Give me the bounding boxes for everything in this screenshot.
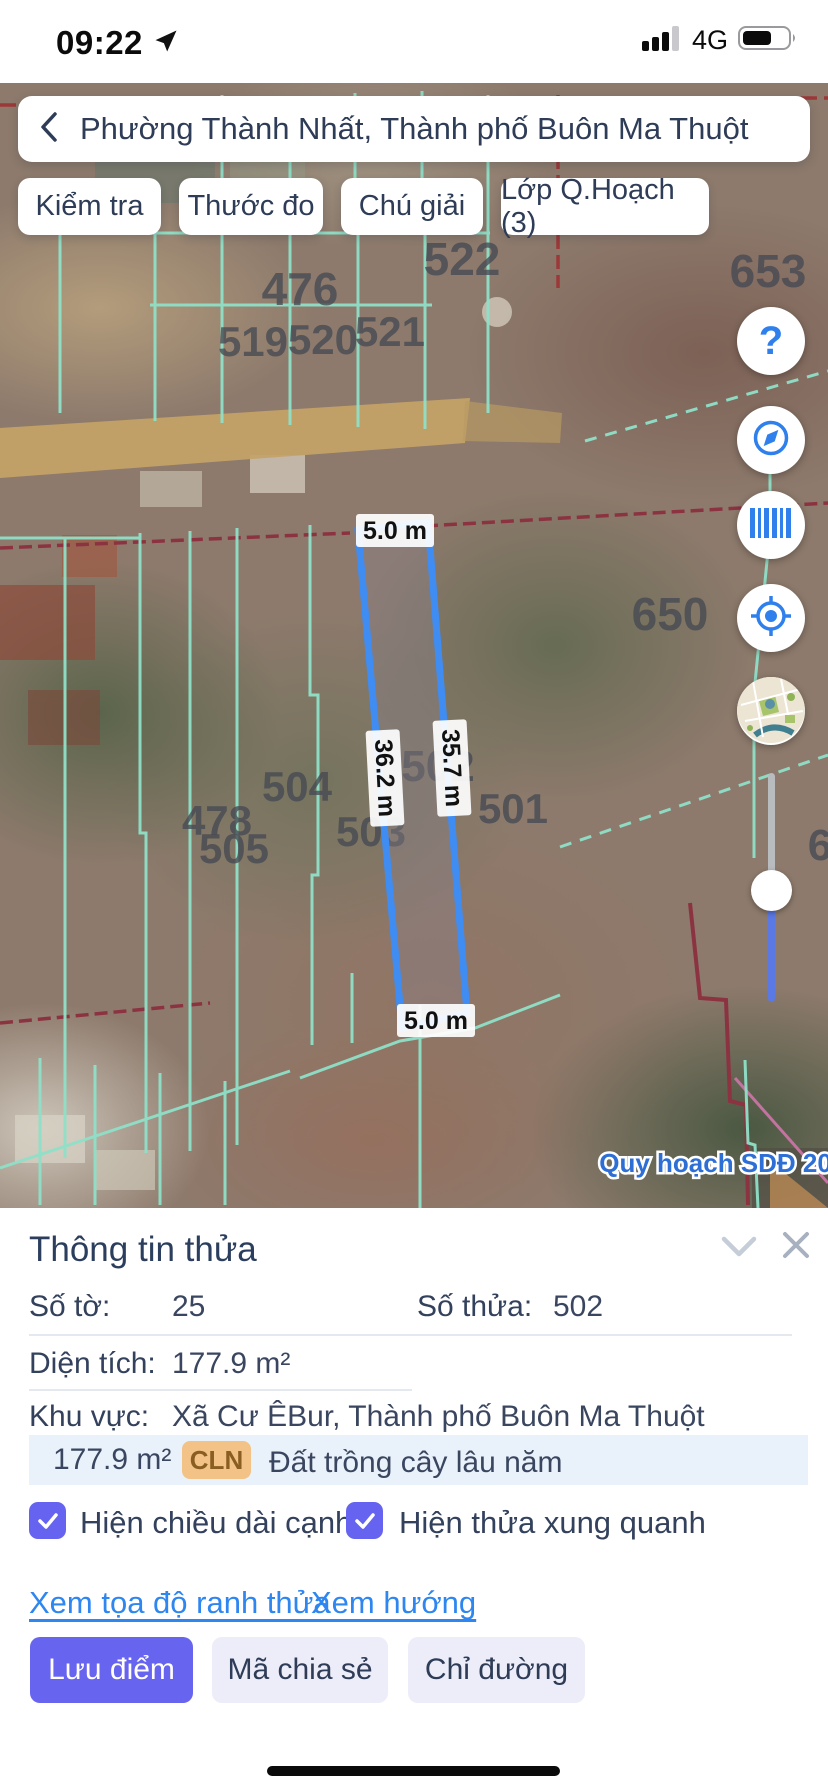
region-value: Xã Cư ÊBur, Thành phố Buôn Ma Thuột (172, 1400, 705, 1434)
land-use-name: Đất trồng cây lâu năm (269, 1446, 562, 1480)
barcode-icon (748, 506, 794, 545)
check-icon (36, 1509, 60, 1533)
check-button[interactable]: Kiểm tra (18, 178, 161, 235)
area-label: Diện tích: (29, 1347, 156, 1381)
measurement-label-right: 35.7 m (433, 719, 472, 817)
question-mark-icon: ? (759, 319, 783, 364)
sheet-number-label: Số tờ: (29, 1290, 110, 1324)
show-edge-lengths-label: Hiện chiều dài cạnh (80, 1505, 352, 1541)
parcel-number-value: 502 (553, 1290, 603, 1324)
planning-badge: Quy hoạch SDĐ 2030 (599, 1148, 828, 1178)
svg-text:36.2 m: 36.2 m (369, 738, 401, 817)
basemap-toggle-button[interactable] (737, 677, 805, 745)
share-code-button[interactable]: Mã chia sẻ (212, 1637, 388, 1703)
legend-button[interactable]: Chú giải (341, 178, 483, 235)
svg-text:505: 505 (199, 825, 269, 872)
planning-layer-button[interactable]: Lớp Q.Hoạch (3) (501, 178, 709, 235)
sheet-number-value: 25 (172, 1290, 205, 1324)
locate-me-button[interactable] (737, 584, 805, 652)
parcel-info-panel: Thông tin thửa Số tờ: 25 Số thửa: 502 Di… (0, 1208, 828, 1792)
crosshair-locate-icon (750, 595, 792, 642)
save-point-button[interactable]: Lưu điểm (30, 1637, 193, 1703)
view-direction-link[interactable]: Xem hướng (311, 1585, 476, 1621)
minimap-icon (737, 677, 805, 745)
region-label: Khu vực: (29, 1400, 149, 1434)
check-icon (353, 1509, 377, 1533)
area-value: 177.9 m² (172, 1347, 290, 1381)
clock: 09:22 (56, 24, 143, 62)
close-panel-button[interactable] (781, 1230, 811, 1265)
svg-text:5.0 m: 5.0 m (363, 517, 427, 545)
svg-text:653: 653 (730, 245, 807, 297)
svg-text:519: 519 (218, 318, 288, 365)
svg-text:6: 6 (808, 821, 828, 870)
show-adjacent-parcels-label: Hiện thửa xung quanh (399, 1505, 706, 1541)
cellular-signal-icon (642, 25, 682, 57)
svg-text:520: 520 (288, 316, 358, 363)
show-adjacent-parcels-checkbox[interactable] (346, 1502, 383, 1539)
svg-text:504: 504 (262, 763, 333, 810)
divider (29, 1334, 792, 1336)
svg-text:521: 521 (355, 308, 425, 355)
help-button[interactable]: ? (737, 307, 805, 375)
map-canvas[interactable]: 476 522 653 519 520 521 650 502 504 503 … (0, 83, 828, 1208)
network-type-label: 4G (692, 25, 728, 56)
barcode-button[interactable] (737, 491, 805, 559)
measurement-label-bottom: 5.0 m (397, 1004, 475, 1037)
location-title: Phường Thành Nhất, Thành phố Buôn Ma Thu… (80, 111, 748, 147)
measurement-label-left: 36.2 m (366, 729, 405, 827)
svg-text:650: 650 (632, 588, 709, 640)
svg-text:522: 522 (424, 233, 501, 285)
parcel-number-label: Số thửa: (417, 1290, 532, 1324)
location-search-bar[interactable]: Phường Thành Nhất, Thành phố Buôn Ma Thu… (18, 96, 810, 162)
land-use-area: 177.9 m² (53, 1443, 171, 1477)
home-indicator[interactable] (267, 1766, 560, 1776)
parcel-number-labels: 476 522 653 519 520 521 650 502 504 503 … (182, 233, 828, 872)
zoom-slider-thumb[interactable] (751, 870, 792, 911)
compass-button[interactable] (737, 406, 805, 474)
divider (29, 1389, 412, 1391)
svg-text:5.0 m: 5.0 m (404, 1007, 468, 1035)
status-icons: 4G (642, 24, 800, 57)
svg-text:35.7 m: 35.7 m (436, 728, 468, 807)
battery-icon (738, 24, 800, 57)
map-overlay: 476 522 653 519 520 521 650 502 504 503 … (0, 83, 828, 1208)
measurement-label-top: 5.0 m (356, 514, 434, 547)
view-boundary-coordinates-link[interactable]: Xem tọa độ ranh thửa (29, 1585, 331, 1621)
collapse-panel-button[interactable] (719, 1234, 759, 1265)
status-bar: 09:22 4G (0, 0, 828, 83)
panel-title: Thông tin thửa (29, 1230, 257, 1270)
app-screen: 09:22 4G (0, 0, 828, 1792)
svg-text:476: 476 (262, 263, 339, 315)
location-arrow-icon (152, 27, 180, 60)
svg-text:501: 501 (478, 785, 548, 832)
directions-button[interactable]: Chỉ đường (408, 1637, 585, 1703)
back-chevron-icon[interactable] (38, 110, 60, 149)
measure-button[interactable]: Thước đo (179, 178, 323, 235)
map-toolbar: Kiểm tra Thước đo Chú giải Lớp Q.Hoạch (… (18, 178, 709, 235)
compass-icon (750, 417, 792, 464)
show-edge-lengths-checkbox[interactable] (29, 1502, 66, 1539)
land-use-code-badge: CLN (182, 1441, 251, 1479)
